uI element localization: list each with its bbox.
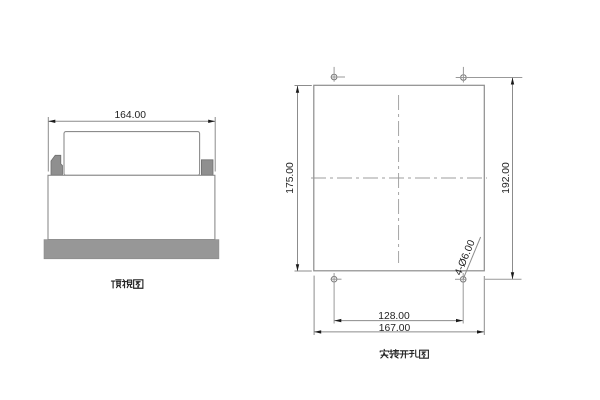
svg-text:128.00: 128.00 xyxy=(378,311,410,322)
svg-text:192.00: 192.00 xyxy=(501,162,512,194)
svg-text:167.00: 167.00 xyxy=(379,323,411,334)
svg-text:164.00: 164.00 xyxy=(114,110,146,121)
svg-text:175.00: 175.00 xyxy=(285,162,296,194)
